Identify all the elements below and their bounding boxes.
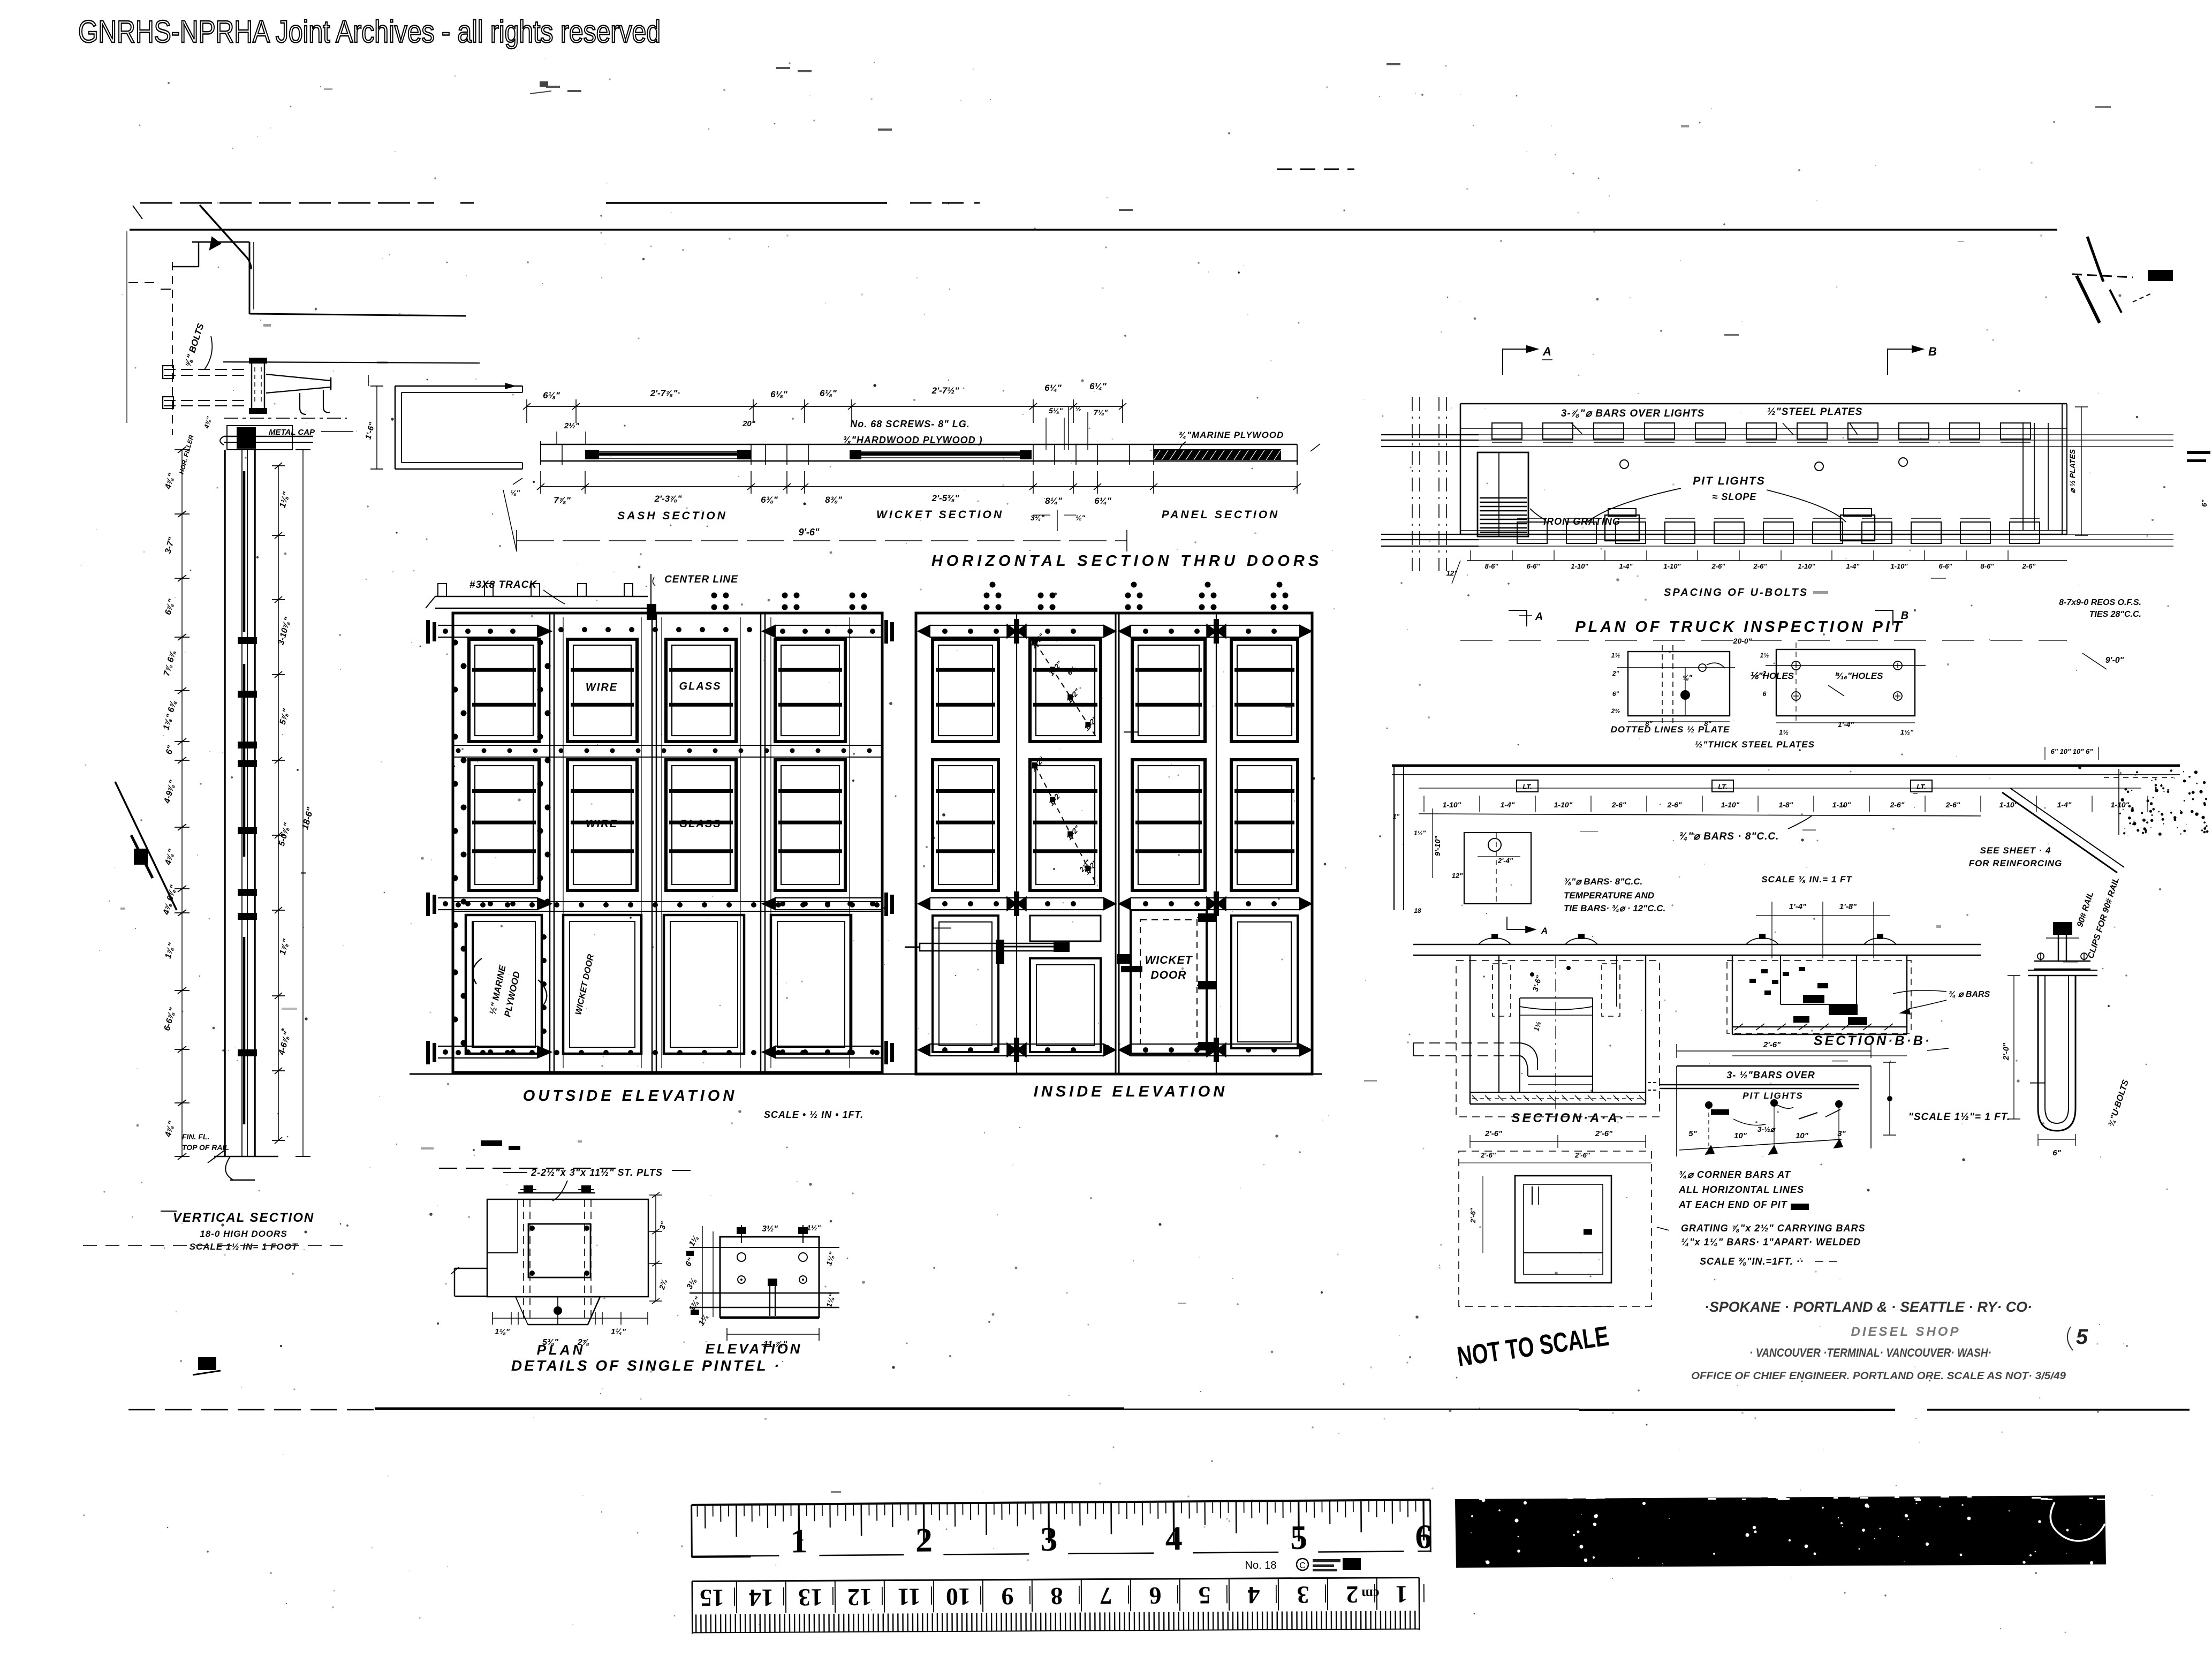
svg-text:IRON GRATING: IRON GRATING: [1543, 516, 1620, 527]
svg-text:⅝": ⅝": [1683, 673, 1693, 682]
svg-text:½"THICK STEEL PLATES: ½"THICK STEEL PLATES: [1695, 739, 1815, 750]
svg-text:2'-6": 2'-6": [1480, 1151, 1496, 1159]
svg-text:1-4": 1-4": [1619, 562, 1633, 570]
svg-text:SCALE ⅜ IN.= 1 FT: SCALE ⅜ IN.= 1 FT: [1761, 874, 1852, 884]
svg-text:1'-4": 1'-4": [1789, 902, 1807, 911]
svg-text:2'-6": 2'-6": [1574, 1151, 1590, 1159]
svg-text:6-6": 6-6": [1939, 562, 1953, 570]
svg-text:8¼": 8¼": [1045, 496, 1063, 506]
svg-text:7⅞": 7⅞": [554, 495, 571, 505]
svg-text:2'-6": 2'-6": [1469, 1207, 1477, 1223]
svg-text:4: 4: [1165, 1519, 1182, 1557]
svg-text:2'-3⅞": 2'-3⅞": [654, 494, 683, 504]
svg-text:CENTER LINE: CENTER LINE: [664, 574, 738, 585]
svg-text:AT EACH END OF PIT: AT EACH END OF PIT: [1678, 1199, 1788, 1210]
svg-text:6": 6": [1612, 690, 1619, 698]
svg-text:C: C: [1299, 1561, 1306, 1570]
svg-text:3½": 3½": [762, 1224, 778, 1234]
svg-text:20-0": 20-0": [1733, 637, 1752, 645]
svg-text:2½: 2½: [1611, 707, 1620, 715]
svg-text:SCALE • ½ IN • 1FT.: SCALE • ½ IN • 1FT.: [764, 1109, 863, 1120]
svg-text:10: 10: [946, 1583, 971, 1610]
svg-text:8-7x9-0 REOS O.F.S.: 8-7x9-0 REOS O.F.S.: [2059, 598, 2141, 607]
svg-text:FIN. FL.: FIN. FL.: [182, 1132, 209, 1141]
svg-text:WIRE: WIRE: [586, 682, 618, 693]
svg-text:A: A: [1541, 926, 1548, 936]
svg-text:6": 6": [2052, 1148, 2061, 1158]
svg-text:7⅛": 7⅛": [1094, 408, 1108, 417]
svg-text:SASH SECTION: SASH SECTION: [617, 510, 728, 522]
svg-text:6⅜": 6⅜": [761, 495, 778, 505]
svg-text:PANEL SECTION: PANEL SECTION: [1162, 509, 1279, 521]
svg-text:10": 10": [1734, 1131, 1747, 1140]
svg-text:GRATING ⅞"x 2½" CARRYING BARS: GRATING ⅞"x 2½" CARRYING BARS: [1681, 1223, 1865, 1234]
svg-text:5: 5: [1198, 1582, 1210, 1609]
svg-text:#3X8 TRACK: #3X8 TRACK: [469, 579, 537, 591]
svg-text:9'-10": 9'-10": [1433, 836, 1442, 856]
svg-text:LT.: LT.: [1718, 783, 1728, 791]
svg-text:3-⅞"⌀ BARS OVER LIGHTS: 3-⅞"⌀ BARS OVER LIGHTS: [1561, 408, 1705, 419]
svg-text:12: 12: [847, 1584, 872, 1611]
svg-text:GLASS: GLASS: [679, 680, 722, 692]
svg-text:¼"x 1¼" BARS· 1"APART· WELDED: ¼"x 1¼" BARS· 1"APART· WELDED: [1681, 1237, 1861, 1247]
svg-text:2-6": 2-6": [1711, 562, 1726, 570]
svg-text:3- ½"BARS OVER: 3- ½"BARS OVER: [1726, 1070, 1815, 1080]
svg-text:6¼": 6¼": [1089, 381, 1107, 391]
svg-text:6¼": 6¼": [1094, 496, 1112, 506]
svg-text:ELEVATION: ELEVATION: [706, 1341, 802, 1357]
svg-text:WICKET SECTION: WICKET SECTION: [876, 509, 1004, 521]
svg-text:2'-6": 2'-6": [1595, 1129, 1613, 1138]
svg-text:TOP OF RAIL: TOP OF RAIL: [182, 1143, 229, 1152]
svg-text:1¼": 1¼": [611, 1327, 626, 1336]
svg-text:1: 1: [1395, 1581, 1407, 1608]
svg-text:ⁱ³⁄₁₆"HOLES: ⁱ³⁄₁₆"HOLES: [1835, 671, 1884, 681]
svg-text:6¼": 6¼": [1044, 383, 1062, 393]
svg-text:1'-4": 1'-4": [1838, 720, 1854, 729]
svg-text:2½": 2½": [564, 421, 580, 430]
svg-text:SECTION·B·B·: SECTION·B·B·: [1814, 1033, 1931, 1048]
svg-text:1½: 1½: [1760, 652, 1769, 659]
svg-text:2: 2: [1762, 670, 1767, 677]
svg-text:1-4": 1-4": [2057, 800, 2072, 809]
svg-text:11: 11: [897, 1583, 921, 1610]
svg-text:⅛": ⅛": [510, 488, 520, 497]
svg-text:3-½⌀: 3-½⌀: [1758, 1125, 1776, 1133]
svg-text:SCALE ⅜"IN.=1FT. ··: SCALE ⅜"IN.=1FT. ··: [1700, 1256, 1804, 1267]
svg-text:FOR REINFORCING: FOR REINFORCING: [1969, 858, 2063, 868]
svg-text:DIESEL SHOP: DIESEL SHOP: [1851, 1325, 1961, 1339]
svg-text:2-6": 2-6": [1753, 562, 1768, 570]
svg-text:SEE SHEET · 4: SEE SHEET · 4: [1980, 845, 2051, 856]
svg-text:2-6": 2-6": [1945, 800, 1960, 809]
svg-text:14: 14: [749, 1584, 774, 1612]
svg-text:2'-0": 2'-0": [2002, 1042, 2011, 1061]
svg-text:1½": 1½": [1900, 728, 1914, 736]
svg-text:1½: 1½: [1779, 728, 1789, 736]
svg-text:18-0 HIGH DOORS: 18-0 HIGH DOORS: [200, 1229, 287, 1239]
svg-text:1-4": 1-4": [1846, 562, 1860, 570]
svg-text:2: 2: [1346, 1581, 1358, 1608]
svg-text:6" 10" 10" 6": 6" 10" 10" 6": [2051, 747, 2094, 755]
svg-text:5": 5": [1688, 1129, 1697, 1138]
svg-text:DETAILS OF SINGLE PINTEL ·: DETAILS OF SINGLE PINTEL ·: [511, 1357, 781, 1374]
svg-text:cm: cm: [1361, 1586, 1380, 1602]
svg-text:9'-6": 9'-6": [799, 527, 820, 538]
svg-text:PLAN OF TRUCK INSPECTION PIT: PLAN OF TRUCK INSPECTION PIT: [1575, 618, 1904, 636]
svg-text:4: 4: [1247, 1582, 1260, 1609]
svg-text:½: ½: [1075, 405, 1081, 413]
svg-text:2-6": 2-6": [1667, 800, 1682, 809]
svg-text:TIE BARS· ¾⌀ · 12"C.C.: TIE BARS· ¾⌀ · 12"C.C.: [1564, 903, 1665, 913]
svg-text:1-4": 1-4": [1501, 800, 1515, 809]
svg-text:SPACING OF U-BOLTS: SPACING OF U-BOLTS: [1664, 587, 1808, 599]
svg-text:2": 2": [1612, 670, 1619, 677]
svg-text:"SCALE 1½"= 1 FT.: "SCALE 1½"= 1 FT.: [1908, 1111, 2010, 1123]
svg-text:6": 6": [2200, 499, 2208, 506]
svg-text:A: A: [1542, 345, 1551, 358]
svg-text:1-10": 1-10": [1832, 800, 1851, 809]
svg-text:2: 2: [915, 1521, 933, 1559]
svg-text:9'-0": 9'-0": [2105, 656, 2124, 665]
svg-text:1: 1: [790, 1522, 807, 1560]
svg-text:INSIDE ELEVATION: INSIDE ELEVATION: [1034, 1083, 1228, 1100]
svg-text:2'-7½": 2'-7½": [931, 385, 960, 396]
svg-text:DOOR: DOOR: [1151, 969, 1187, 981]
svg-text:LT.: LT.: [1916, 783, 1926, 791]
svg-text:15: 15: [700, 1584, 724, 1612]
svg-text:2-6": 2-6": [1611, 800, 1626, 809]
svg-text:A: A: [1535, 611, 1543, 623]
svg-text:· VANCOUVER ·TERMINAL· VANCOUV: · VANCOUVER ·TERMINAL· VANCOUVER· WASH·: [1749, 1346, 1991, 1359]
svg-text:No. 68 SCREWS- 8" LG.: No. 68 SCREWS- 8" LG.: [850, 419, 970, 429]
svg-text:7: 7: [1100, 1582, 1112, 1609]
svg-text:No. 18: No. 18: [1245, 1560, 1277, 1571]
svg-text:12": 12": [1452, 872, 1463, 880]
svg-text:GNRHS-NPRHA Joint Archives - a: GNRHS-NPRHA Joint Archives - all rights …: [78, 14, 661, 49]
svg-text:½"STEEL PLATES: ½"STEEL PLATES: [1767, 406, 1863, 418]
svg-text:6⅛": 6⅛": [770, 389, 788, 399]
svg-text:18: 18: [1414, 907, 1421, 914]
svg-text:1½: 1½: [1611, 652, 1620, 659]
svg-text:6⅛": 6⅛": [820, 388, 837, 398]
svg-text:1-8": 1-8": [1779, 800, 1793, 809]
svg-text:2'-5⅜": 2'-5⅜": [931, 493, 960, 503]
svg-text:8-6": 8-6": [1981, 562, 1995, 570]
svg-text:1⅛": 1⅛": [495, 1327, 510, 1336]
svg-text:5: 5: [2076, 1325, 2088, 1349]
svg-text:WICKET: WICKET: [1145, 954, 1193, 966]
svg-text:TIES 28"C.C.: TIES 28"C.C.: [2089, 610, 2141, 619]
svg-text:5: 5: [1290, 1518, 1307, 1556]
svg-text:6⅛": 6⅛": [543, 390, 560, 400]
svg-text:DOTTED LINES ½ PLATE: DOTTED LINES ½ PLATE: [1611, 724, 1730, 735]
svg-text:⅜"⌀ BARS· 8"C.C.: ⅜"⌀ BARS· 8"C.C.: [1564, 876, 1642, 887]
svg-text:TEMPERATURE AND: TEMPERATURE AND: [1564, 890, 1654, 901]
svg-text:1-10": 1-10": [1663, 562, 1681, 570]
svg-text:2'-6": 2'-6": [1763, 1040, 1781, 1049]
svg-text:B: B: [1928, 345, 1937, 358]
svg-text:OFFICE OF CHIEF ENGINEER. PO: OFFICE OF CHIEF ENGINEER. PORTLAND ORE. …: [1691, 1371, 2066, 1382]
svg-text:VERTICAL SECTION: VERTICAL SECTION: [173, 1211, 314, 1225]
svg-text:¾ ⌀ BARS: ¾ ⌀ BARS: [1949, 990, 1990, 999]
svg-text:1": 1": [1393, 813, 1400, 820]
svg-text:2-6": 2-6": [1890, 800, 1905, 809]
svg-text:6-6": 6-6": [1527, 562, 1541, 570]
svg-text:1-10": 1-10": [1443, 800, 1461, 809]
svg-text:PIT LIGHTS: PIT LIGHTS: [1743, 1091, 1804, 1101]
svg-text:2'-6": 2'-6": [1484, 1129, 1503, 1138]
svg-text:1-10": 1-10": [1554, 800, 1573, 809]
svg-text:1-10": 1-10": [1890, 562, 1908, 570]
svg-text:1-10": 1-10": [1798, 562, 1815, 570]
svg-text:1'-8": 1'-8": [1839, 902, 1857, 911]
svg-text:1-10": 1-10": [1721, 800, 1740, 809]
svg-text:¾⌀ CORNER BARS AT: ¾⌀ CORNER BARS AT: [1679, 1169, 1791, 1180]
svg-text:1-10": 1-10": [1571, 562, 1588, 570]
svg-text:¾"MARINE PLYWOOD: ¾"MARINE PLYWOOD: [1179, 430, 1284, 440]
svg-text:PIT LIGHTS: PIT LIGHTS: [1693, 475, 1766, 487]
svg-text:3: 3: [1297, 1582, 1309, 1609]
svg-text:⅙"HOLES: ⅙"HOLES: [1749, 671, 1794, 681]
svg-text:8: 8: [1050, 1583, 1063, 1610]
svg-text:13: 13: [798, 1584, 823, 1611]
svg-text:20": 20": [742, 419, 756, 428]
svg-text:6: 6: [1415, 1517, 1432, 1555]
svg-text:⌀ ½ PLATES: ⌀ ½ PLATES: [2068, 449, 2077, 493]
svg-text:≈ SLOPE: ≈ SLOPE: [1713, 491, 1757, 502]
svg-text:9: 9: [1001, 1583, 1013, 1610]
svg-text:1½": 1½": [807, 1223, 821, 1232]
svg-text:SCALE 1½ IN= 1 FOOT: SCALE 1½ IN= 1 FOOT: [190, 1242, 298, 1252]
svg-text:2'-7⅞": 2'-7⅞": [650, 388, 678, 398]
svg-text:WIRE: WIRE: [586, 818, 618, 830]
svg-text:HORIZONTAL SECTION THRU DOORS: HORIZONTAL SECTION THRU DOORS: [931, 553, 1322, 570]
svg-text:2-6": 2-6": [2022, 562, 2036, 570]
svg-text:·SPOKANE · PORTLAND & · SEATTL: ·SPOKANE · PORTLAND & · SEATTLE · RY· CO…: [1705, 1299, 2032, 1315]
svg-text:1-10": 1-10": [2111, 800, 2130, 809]
svg-text:5⅛": 5⅛": [1049, 406, 1063, 415]
svg-text:2'-4": 2'-4": [1497, 857, 1513, 865]
svg-text:OUTSIDE ELEVATION: OUTSIDE ELEVATION: [523, 1087, 738, 1105]
svg-text:PLAN: PLAN: [537, 1342, 586, 1358]
svg-text:GLASS: GLASS: [679, 818, 722, 830]
svg-text:3: 3: [1040, 1520, 1057, 1558]
svg-text:6: 6: [1763, 690, 1767, 698]
svg-text:6: 6: [1149, 1582, 1161, 1609]
svg-text:¾"⌀ BARS · 8"C.C.: ¾"⌀ BARS · 8"C.C.: [1679, 831, 1779, 842]
svg-text:8⅜": 8⅜": [825, 495, 843, 505]
svg-text:ALL HORIZONTAL LINES: ALL HORIZONTAL LINES: [1678, 1184, 1804, 1195]
svg-text:10": 10": [1796, 1131, 1809, 1140]
svg-text:LT.: LT.: [1522, 783, 1532, 791]
svg-text:1½": 1½": [1414, 829, 1426, 837]
svg-text:½": ½": [1075, 513, 1086, 522]
svg-text:SECTION·A·A·: SECTION·A·A·: [1511, 1111, 1625, 1125]
svg-text:8-6": 8-6": [1485, 562, 1499, 570]
